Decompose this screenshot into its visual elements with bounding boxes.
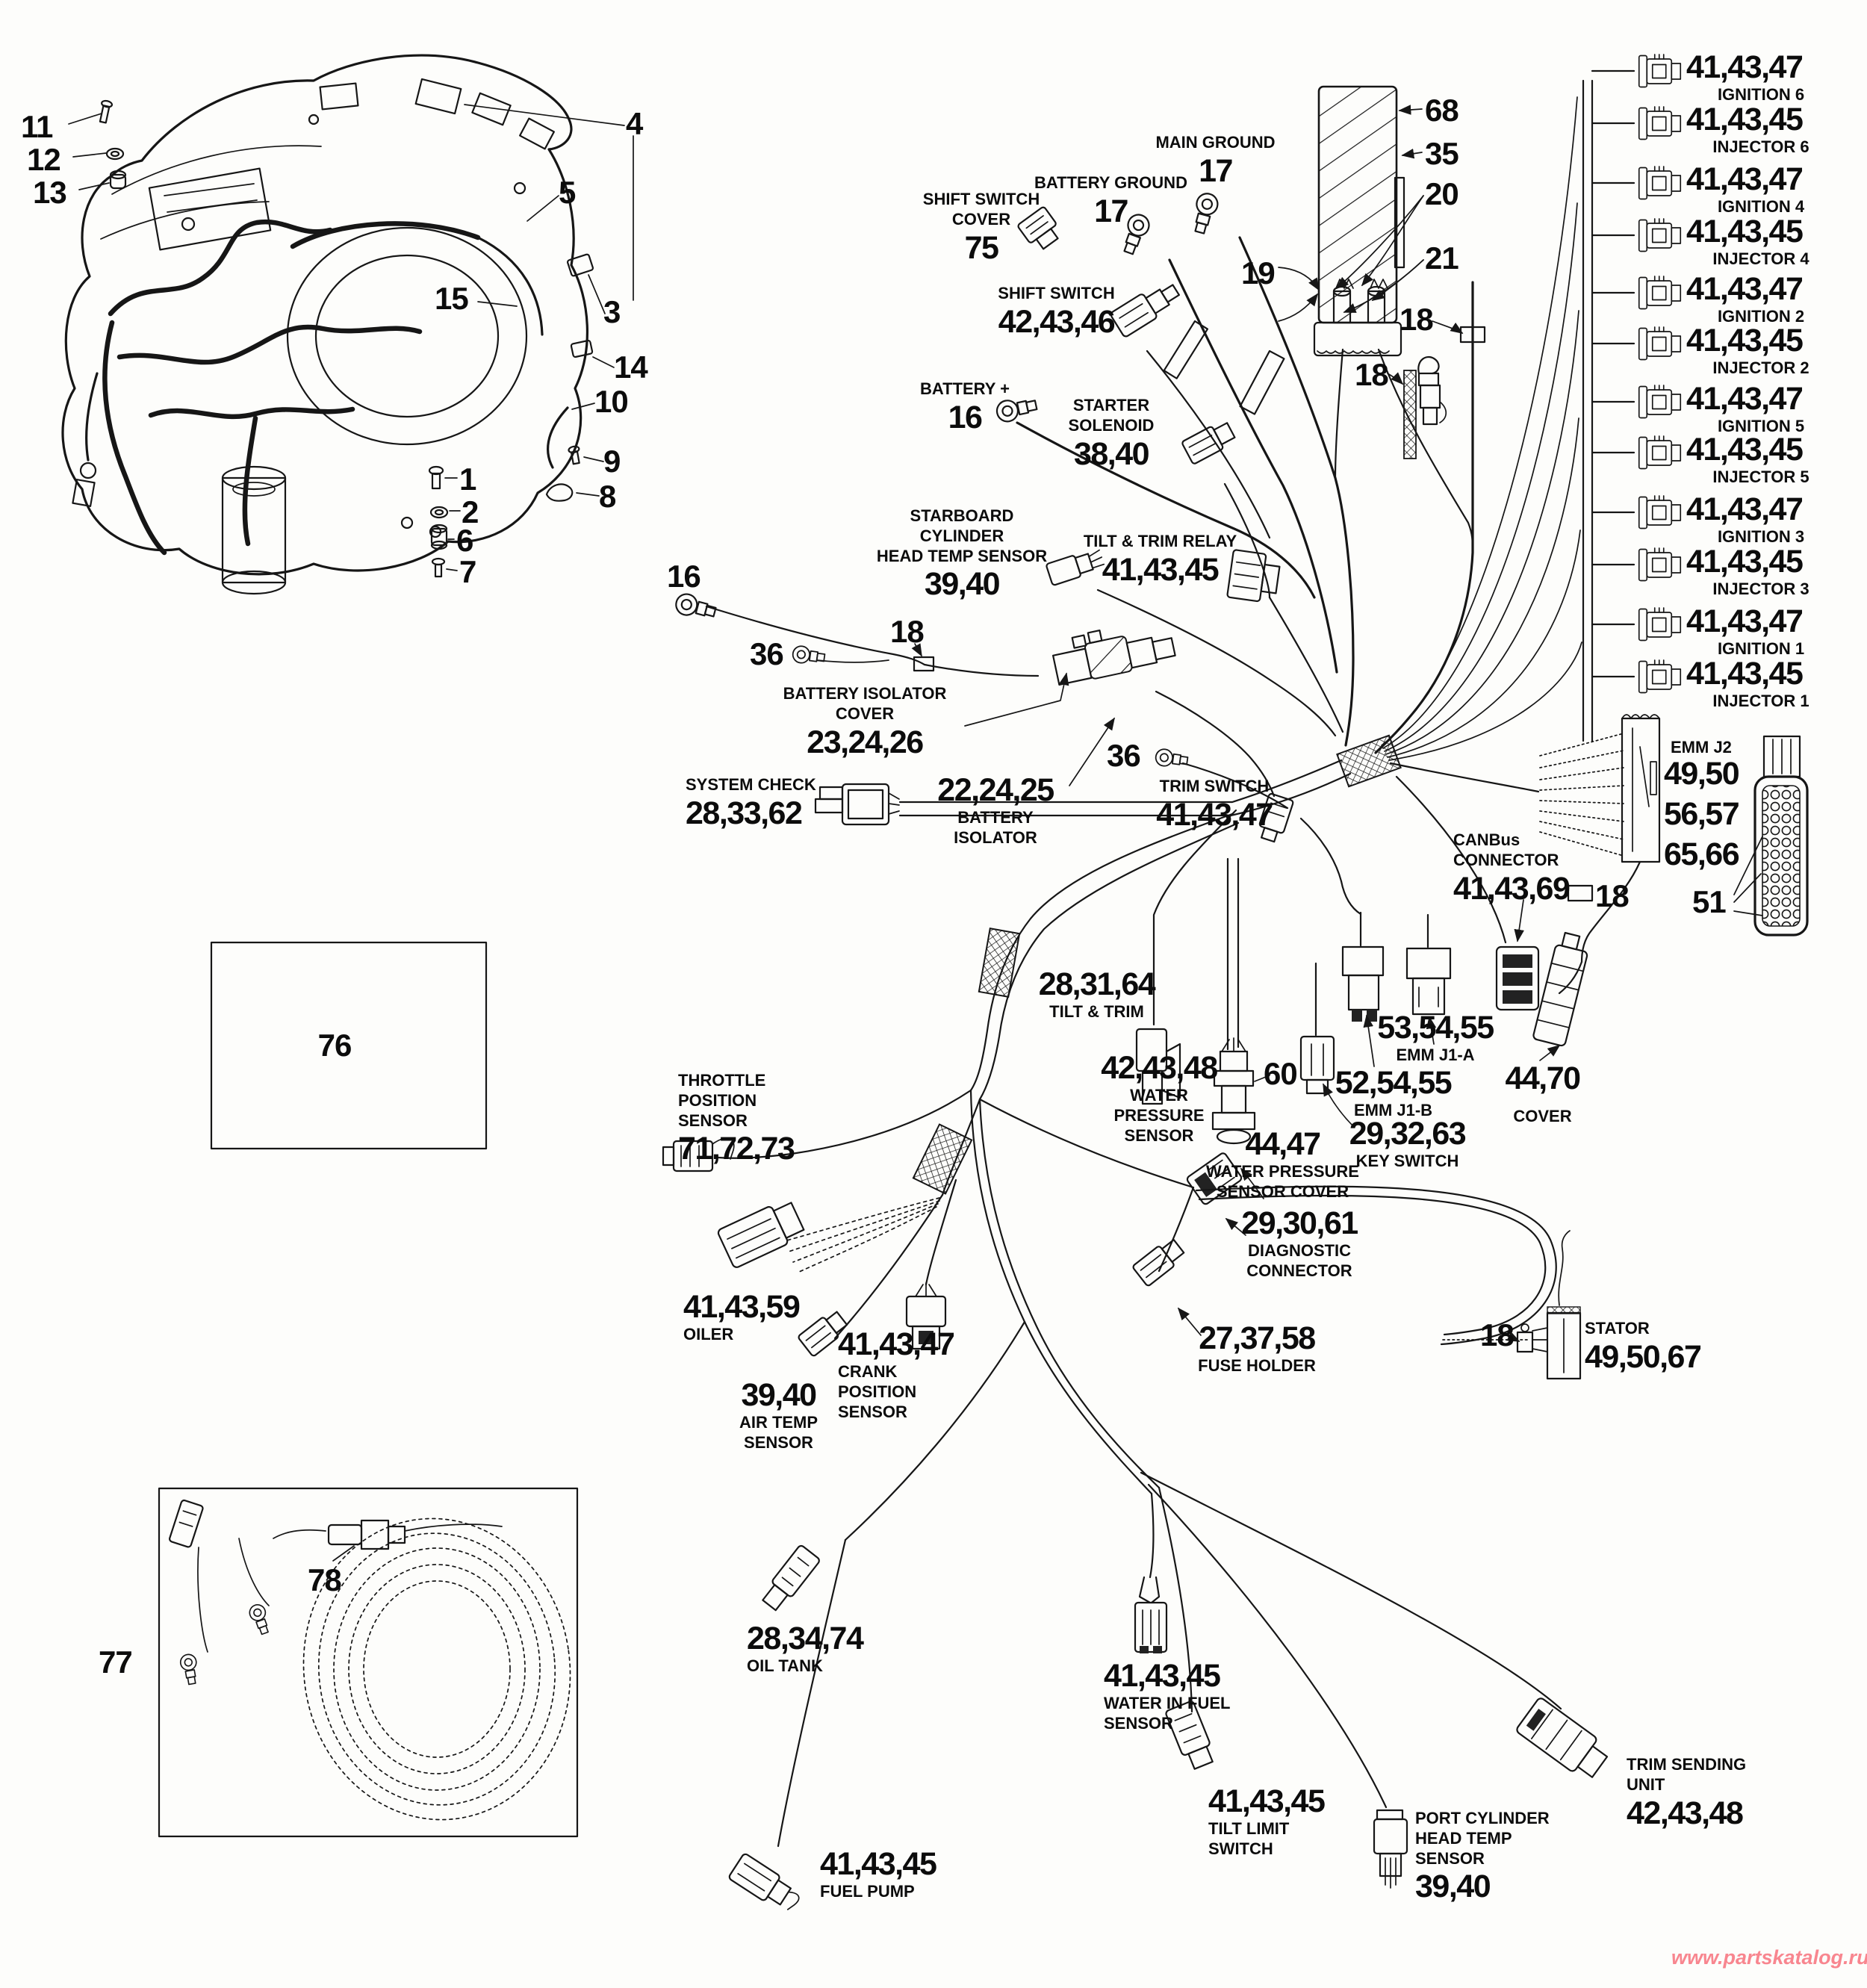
callout-13: 13 [33, 175, 66, 211]
callout-15: 15 [435, 281, 468, 317]
label-emm-j2-name: EMM J2 [1671, 738, 1732, 758]
stator-clamp-icon [1517, 1324, 1532, 1352]
callout-8: 8 [599, 479, 615, 515]
injector-3-connector-icon [1639, 548, 1681, 581]
callout-10: 10 [594, 384, 628, 420]
label-fuse-holder: 27,37,58FUSE HOLDER [1193, 1320, 1320, 1376]
ignition-5-connector-icon [1639, 385, 1681, 418]
callout-18: 18 [890, 614, 924, 650]
injector-1-connector-icon [1639, 660, 1681, 693]
callout-6: 6 [456, 523, 473, 559]
callout-21: 21 [1425, 240, 1459, 276]
screw-icon [98, 100, 113, 123]
callout-3: 3 [603, 294, 620, 330]
label-injector-3: 41,43,45INJECTOR 3 [1686, 544, 1821, 600]
label-oil-tank: 28,34,74OIL TANK [747, 1621, 866, 1677]
label-battery-ground: BATTERY GROUND17 [1031, 173, 1191, 229]
callout-18: 18 [1480, 1317, 1514, 1353]
label-tilt-trim: 28,31,64TILT & TRIM [1035, 966, 1158, 1022]
water-in-fuel-sensor-connector-icon [1135, 1577, 1167, 1653]
battery-isolator-icon [1050, 616, 1176, 686]
ignition-1-connector-icon [1639, 608, 1681, 641]
callout-18: 18 [1595, 878, 1629, 914]
callout-4: 4 [626, 106, 642, 142]
callout-77: 77 [99, 1644, 132, 1680]
label-key-switch: 29,32,63KEY SWITCH [1338, 1116, 1476, 1172]
label-tilt-limit-switch: 41,43,45TILT LIMIT SWITCH [1208, 1783, 1358, 1860]
callout-18: 18 [1355, 357, 1388, 393]
battery-cable [1376, 282, 1473, 753]
callout-36: 36 [1107, 738, 1140, 774]
callout-78: 78 [308, 1562, 341, 1598]
watermark-link[interactable]: www.partskatalog.ru [1671, 1946, 1867, 1969]
label-stator: STATOR49,50,67 [1585, 1319, 1712, 1375]
callout-18: 18 [1400, 302, 1433, 338]
callout-35: 35 [1425, 136, 1459, 172]
label-emm-j1b: 52,54,55EMM J1-B [1328, 1065, 1459, 1121]
injector-4-connector-icon [1639, 219, 1681, 252]
callout-9: 9 [603, 444, 620, 479]
callout-51: 51 [1692, 884, 1726, 920]
label-ignition-3: 41,43,47IGNITION 3 [1686, 491, 1821, 547]
injector-6-connector-icon [1639, 107, 1681, 140]
port-head-temp-sensor-connector-icon [1374, 1810, 1407, 1888]
callout-76: 76 [305, 1028, 364, 1063]
callout-19: 19 [1241, 255, 1275, 291]
ring-terminal-icon [1155, 748, 1188, 769]
label-throttle-position-sensor: THROTTLE POSITION SENSOR71,72,73 [678, 1071, 842, 1167]
label-battery-plus: BATTERY +16 [913, 379, 1017, 435]
ignition-6-connector-icon [1639, 55, 1681, 87]
label-emm-j1a: 53,54,55EMM J1-A [1368, 1010, 1503, 1066]
trim-sending-unit-connector-icon [1515, 1697, 1612, 1783]
callout-1: 1 [459, 462, 476, 497]
stator-wires [1532, 1328, 1547, 1352]
label-emm-j2-numbers: 49,5056,5765,66 [1664, 756, 1739, 872]
label-shift-switch-cover: SHIFT SWITCH COVER75 [917, 190, 1046, 266]
fastener-strip-icon [1404, 357, 1446, 459]
system-check-connector-icon [816, 784, 899, 824]
label-injector-4: 41,43,45INJECTOR 4 [1686, 214, 1821, 270]
label-cover: 44,70COVER [1500, 1060, 1585, 1127]
harness-wrap [979, 928, 1019, 997]
label-ignition-1: 41,43,47IGNITION 1 [1686, 603, 1821, 659]
callout-16: 16 [667, 559, 700, 594]
right-trunk [1583, 55, 1680, 741]
injector-5-connector-icon [1639, 436, 1681, 469]
label-injector-6: 41,43,45INJECTOR 6 [1686, 102, 1821, 158]
label-ignition-4: 41,43,47IGNITION 4 [1686, 161, 1821, 217]
label-ignition-2: 41,43,47IGNITION 2 [1686, 271, 1821, 327]
main-ground-ring-terminal-icon [1190, 191, 1220, 234]
label-diagnostic-connector: 29,30,61DIAGNOSTIC CONNECTOR [1240, 1205, 1359, 1282]
oil-tank-connector-icon [759, 1544, 821, 1613]
label-canbus-connector: CANBus CONNECTOR41,43,69 [1453, 830, 1580, 907]
callout-20: 20 [1425, 176, 1459, 212]
label-system-check: SYSTEM CHECK28,33,62 [686, 775, 816, 831]
canbus-connector-icon [1497, 947, 1538, 1010]
screw-icon [432, 559, 444, 577]
harness-line-art [0, 0, 1867, 1988]
ignition-3-connector-icon [1639, 496, 1681, 529]
plug-icon [571, 340, 592, 357]
label-trim-switch: TRIM SWITCH41,43,47 [1147, 777, 1282, 833]
washer-icon [431, 507, 447, 518]
cable-connector-icon [273, 1520, 502, 1549]
battery-icon [1314, 87, 1404, 355]
ignition-4-connector-icon [1639, 167, 1681, 199]
label-oiler: 41,43,59OILER [683, 1289, 810, 1345]
callout-68: 68 [1425, 93, 1459, 128]
fuse-holder-connector-icon [1132, 1236, 1187, 1286]
label-tilt-trim-relay: TILT & TRIM RELAY41,43,45 [1080, 532, 1240, 588]
label-water-in-fuel-sensor: 41,43,45WATER IN FUEL SENSOR [1104, 1658, 1231, 1734]
label-ignition-5: 41,43,47IGNITION 5 [1686, 381, 1821, 437]
inset-box-77 [159, 1488, 589, 1837]
pin-connector-51-icon [1755, 736, 1807, 935]
washer-icon [107, 149, 123, 159]
injector-2-connector-icon [1639, 327, 1681, 360]
label-shift-switch: SHIFT SWITCH42,43,46 [987, 284, 1125, 340]
wiring-harness-parts-diagram: 11 12 13 4 5 15 3 14 10 9 8 1 2 6 7 68 3… [0, 0, 1867, 1988]
label-port-head-temp-sensor: PORT CYLINDER HEAD TEMP SENSOR39,40 [1415, 1809, 1565, 1905]
callout-5: 5 [559, 175, 575, 211]
clip-icon [547, 484, 572, 500]
bolt-icon [429, 467, 443, 488]
label-starboard-head-temp-sensor: STARBOARD CYLINDER HEAD TEMP SENSOR39,40 [875, 506, 1049, 603]
label-crank-position-sensor: 41,43,47CRANK POSITION SENSOR [838, 1326, 980, 1423]
label-battery-isolator: 22,24,25BATTERY ISOLATOR [925, 772, 1066, 848]
label-starter-solenoid: STARTER SOLENOID38,40 [1032, 396, 1190, 472]
callout-36: 36 [750, 636, 783, 672]
oiler-connector-icon [717, 1197, 807, 1269]
emm-j1a-connector-icon [1407, 948, 1450, 1014]
callout-60: 60 [1264, 1056, 1297, 1092]
label-injector-1: 41,43,45INJECTOR 1 [1686, 656, 1821, 712]
label-injector-2: 41,43,45INJECTOR 2 [1686, 323, 1821, 379]
hose-icon [548, 408, 568, 468]
label-trim-sending-unit: TRIM SENDING UNIT42,43,48 [1627, 1755, 1787, 1831]
callout-11: 11 [21, 109, 52, 145]
stator-connector-icon [1547, 1231, 1580, 1379]
label-water-pressure-sensor-cover: 44,47WATER PRESSURE SENSOR COVER [1206, 1126, 1359, 1202]
label-battery-isolator-cover: BATTERY ISOLATOR COVER23,24,26 [760, 684, 969, 760]
engine-assembly-drawing [63, 55, 633, 594]
emm-j2-connector-icon [1622, 715, 1659, 862]
ring-terminal-icon [792, 645, 825, 666]
label-injector-5: 41,43,45INJECTOR 5 [1686, 432, 1821, 488]
isolator-leaders [965, 674, 1114, 786]
callout-12: 12 [27, 142, 60, 178]
ignition-2-connector-icon [1639, 276, 1681, 309]
label-fuel-pump: 41,43,45FUEL PUMP [820, 1846, 939, 1902]
label-air-temp-sensor: 39,40AIR TEMP SENSOR [732, 1377, 825, 1453]
fuel-pump-connector-icon [728, 1853, 804, 1916]
callout-14: 14 [614, 350, 647, 385]
callout-7: 7 [459, 554, 476, 590]
label-ignition-6: 41,43,47IGNITION 6 [1686, 49, 1821, 105]
harness-wrap [913, 1125, 972, 1194]
